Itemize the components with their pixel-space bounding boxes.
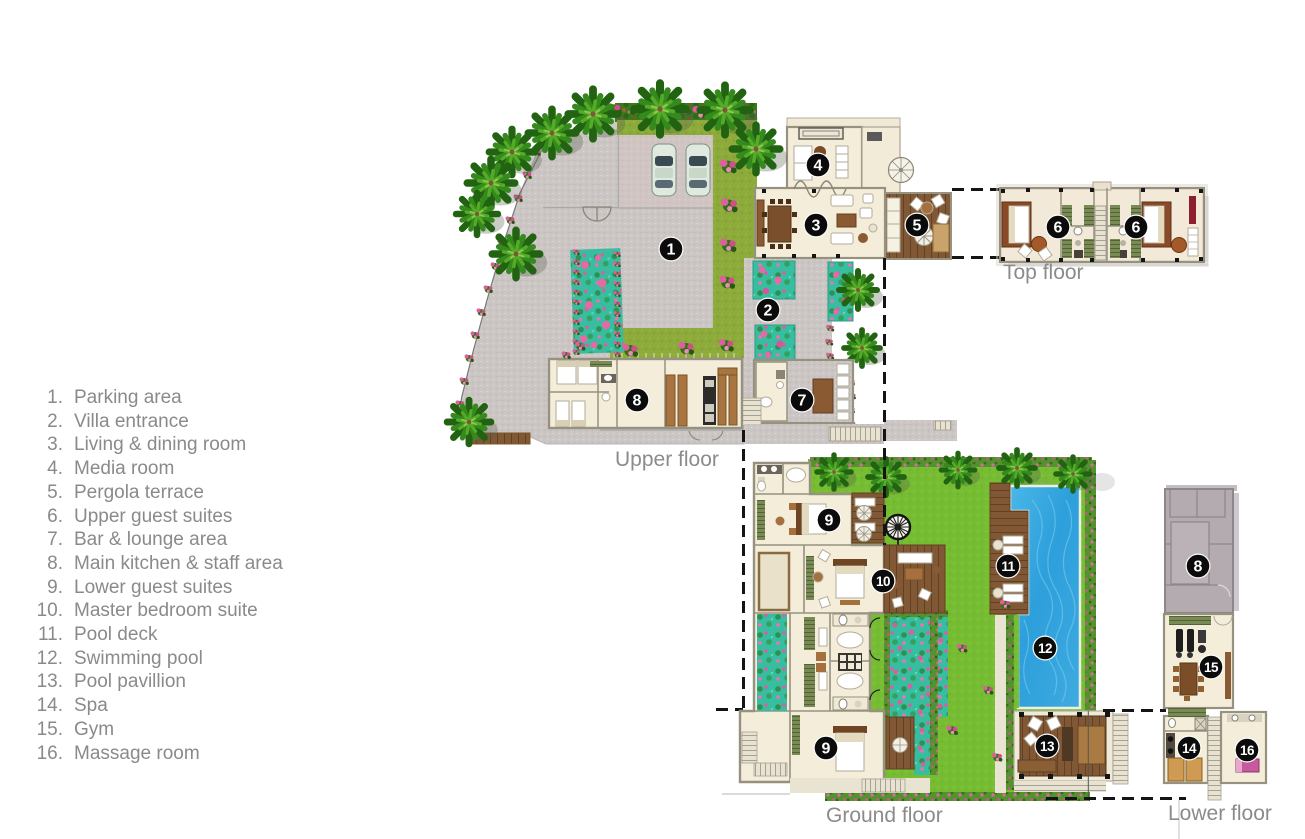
svg-text:Upper floor: Upper floor (615, 448, 719, 471)
svg-text:2: 2 (764, 303, 773, 320)
svg-text:3: 3 (812, 218, 821, 235)
svg-text:8: 8 (1194, 559, 1203, 576)
svg-text:8: 8 (633, 393, 642, 410)
svg-text:6: 6 (1132, 220, 1141, 237)
svg-text:12: 12 (1038, 641, 1052, 656)
svg-text:Top floor: Top floor (1003, 261, 1084, 284)
svg-text:16: 16 (1240, 743, 1255, 758)
svg-text:9: 9 (825, 513, 834, 530)
svg-text:1: 1 (667, 242, 676, 259)
svg-text:6: 6 (1054, 220, 1063, 237)
svg-text:5: 5 (913, 218, 922, 235)
svg-text:4: 4 (814, 158, 823, 175)
svg-text:Lower floor: Lower floor (1168, 802, 1272, 825)
svg-text:11: 11 (1001, 559, 1015, 574)
svg-text:13: 13 (1040, 739, 1055, 754)
svg-text:14: 14 (1182, 741, 1197, 756)
svg-text:Ground floor: Ground floor (826, 804, 943, 827)
svg-text:10: 10 (876, 574, 890, 589)
svg-text:7: 7 (798, 393, 807, 410)
svg-text:15: 15 (1204, 660, 1219, 675)
svg-text:9: 9 (822, 741, 831, 758)
